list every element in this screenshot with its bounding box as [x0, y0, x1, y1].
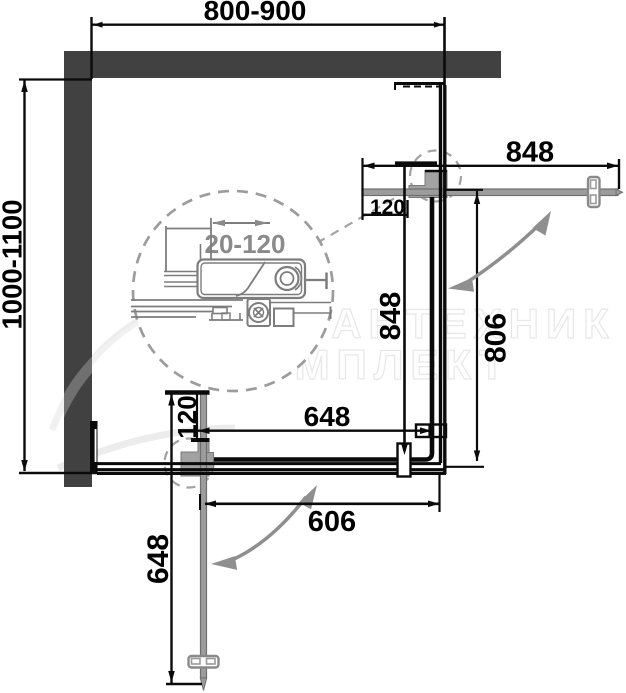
svg-text:848: 848: [506, 137, 554, 169]
svg-text:648: 648: [304, 401, 351, 432]
svg-text:800-900: 800-900: [204, 0, 307, 26]
svg-text:606: 606: [308, 506, 356, 538]
svg-text:САНТЕХНИК: САНТЕХНИК: [295, 300, 616, 347]
svg-text:20-120: 20-120: [205, 229, 286, 259]
svg-text:806: 806: [480, 313, 513, 363]
svg-text:848: 848: [375, 292, 407, 340]
svg-text:648: 648: [142, 534, 175, 584]
